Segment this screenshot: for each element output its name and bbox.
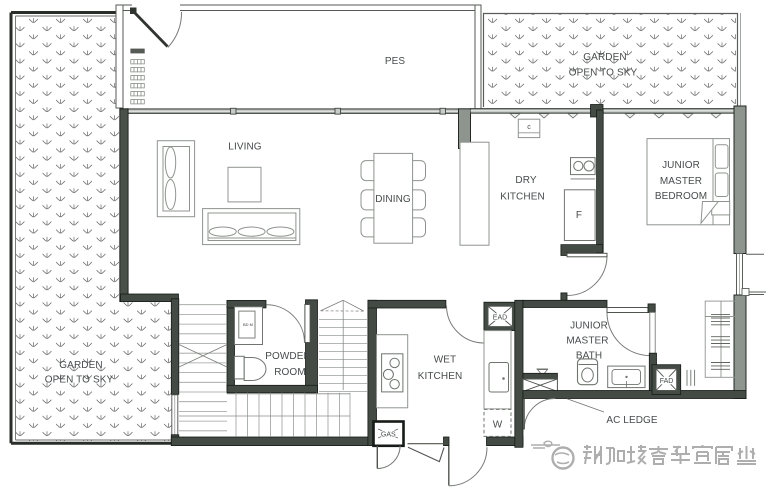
- svg-text:ROOM: ROOM: [274, 367, 306, 378]
- svg-text:MASTER: MASTER: [566, 336, 608, 347]
- svg-text:KITCHEN: KITCHEN: [418, 371, 463, 382]
- svg-text:F: F: [576, 210, 582, 221]
- svg-text:JUNIOR: JUNIOR: [570, 321, 608, 332]
- svg-text:W: W: [493, 420, 503, 431]
- svg-text:DRY: DRY: [515, 175, 536, 186]
- svg-text:c: c: [527, 124, 531, 131]
- svg-text:BD M: BD M: [243, 322, 253, 327]
- svg-text:GARDEN: GARDEN: [583, 52, 626, 63]
- svg-text:BEDROOM: BEDROOM: [655, 191, 707, 202]
- svg-text:KITCHEN: KITCHEN: [500, 192, 545, 203]
- svg-text:JUNIOR: JUNIOR: [662, 160, 700, 171]
- svg-text:OPEN TO SKY: OPEN TO SKY: [45, 374, 114, 385]
- svg-text:AC LEDGE: AC LEDGE: [606, 415, 658, 426]
- svg-text:WET: WET: [434, 355, 457, 366]
- svg-text:EAD: EAD: [493, 315, 507, 322]
- svg-text:PES: PES: [385, 56, 406, 67]
- svg-text:MASTER: MASTER: [660, 176, 702, 187]
- svg-text:GARDEN: GARDEN: [59, 360, 102, 371]
- svg-text:OPEN TO SKY: OPEN TO SKY: [569, 67, 638, 78]
- svg-text:POWDER: POWDER: [265, 351, 311, 362]
- svg-text:GAS: GAS: [381, 432, 396, 439]
- svg-text:DINING: DINING: [375, 194, 411, 205]
- svg-text:LIVING: LIVING: [228, 142, 262, 153]
- svg-text:FAD: FAD: [660, 378, 674, 385]
